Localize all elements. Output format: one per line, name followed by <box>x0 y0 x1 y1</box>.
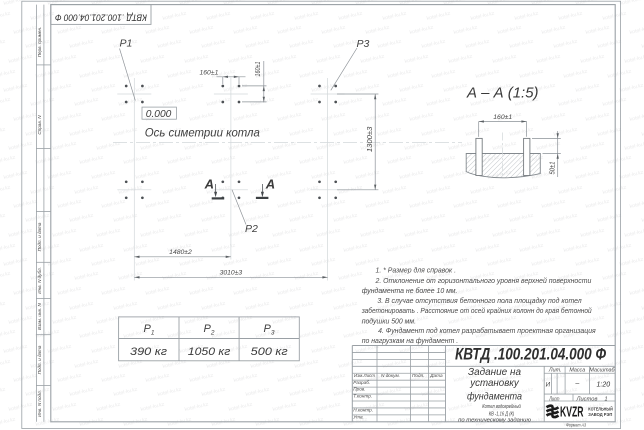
svg-text:kotel-kv.kz: kotel-kv.kz <box>223 170 248 181</box>
svg-text:kotel-kv.kz: kotel-kv.kz <box>431 69 456 80</box>
svg-text:kotel-kv.kz: kotel-kv.kz <box>228 315 253 326</box>
svg-text:Взам. инв. N: Взам. инв. N <box>37 303 42 330</box>
svg-text:kotel-kv.kz: kotel-kv.kz <box>13 286 38 297</box>
svg-text:kotel-kv.kz: kotel-kv.kz <box>338 97 363 108</box>
svg-text:kotel-kv.kz: kotel-kv.kz <box>118 271 143 282</box>
svg-text:kotel-kv.kz: kotel-kv.kz <box>123 155 148 166</box>
svg-text:kotel-kv.kz: kotel-kv.kz <box>162 185 187 196</box>
svg-text:kotel-kv.kz: kotel-kv.kz <box>277 286 302 297</box>
svg-text:Подп.: Подп. <box>412 373 424 378</box>
svg-text:kotel-kv.kz: kotel-kv.kz <box>404 402 429 413</box>
svg-text:kotel-kv.kz: kotel-kv.kz <box>96 402 121 413</box>
svg-text:kotel-kv.kz: kotel-kv.kz <box>250 271 275 282</box>
svg-text:kotel-kv.kz: kotel-kv.kz <box>431 243 456 254</box>
svg-text:установку: установку <box>469 378 519 389</box>
svg-text:kotel-kv.kz: kotel-kv.kz <box>57 286 82 297</box>
svg-text:kotel-kv.kz: kotel-kv.kz <box>333 213 358 224</box>
svg-text:kotel-kv.kz: kotel-kv.kz <box>629 112 644 123</box>
svg-text:kotel-kv.kz: kotel-kv.kz <box>580 228 605 239</box>
svg-text:kotel-kv.kz: kotel-kv.kz <box>74 97 99 108</box>
svg-text:kotel-kv.kz: kotel-kv.kz <box>52 402 77 413</box>
svg-text:kotel-kv.kz: kotel-kv.kz <box>79 69 104 80</box>
svg-text:КВТД .100.201.04.000 Ф: КВТД .100.201.04.000 Ф <box>55 12 147 22</box>
svg-text:kotel-kv.kz: kotel-kv.kz <box>157 387 182 398</box>
svg-text:kotel-kv.kz: kotel-kv.kz <box>162 271 187 282</box>
svg-text:kotel-kv.kz: kotel-kv.kz <box>255 243 280 254</box>
svg-text:kotel-kv.kz: kotel-kv.kz <box>338 11 363 22</box>
svg-text:kotel-kv.kz: kotel-kv.kz <box>377 387 402 398</box>
svg-text:kotel-kv.kz: kotel-kv.kz <box>343 243 368 254</box>
svg-text:kotel-kv.kz: kotel-kv.kz <box>113 387 138 398</box>
svg-text:kotel-kv.kz: kotel-kv.kz <box>497 199 522 210</box>
svg-text:kotel-kv.kz: kotel-kv.kz <box>272 402 297 413</box>
svg-text:kotel-kv.kz: kotel-kv.kz <box>607 69 632 80</box>
svg-text:kotel-kv.kz: kotel-kv.kz <box>497 25 522 36</box>
svg-text:kotel-kv.kz: kotel-kv.kz <box>277 112 302 123</box>
svg-text:kotel-kv.kz: kotel-kv.kz <box>475 243 500 254</box>
svg-text:kotel-kv.kz: kotel-kv.kz <box>0 329 16 340</box>
svg-text:kotel-kv.kz: kotel-kv.kz <box>443 170 468 181</box>
svg-text:160±1: 160±1 <box>493 114 512 121</box>
svg-text:kotel-kv.kz: kotel-kv.kz <box>299 329 324 340</box>
svg-text:kotel-kv.kz: kotel-kv.kz <box>184 402 209 413</box>
svg-text:kotel-kv.kz: kotel-kv.kz <box>206 359 231 370</box>
svg-text:kotel-kv.kz: kotel-kv.kz <box>541 25 566 36</box>
svg-text:kotel-kv.kz: kotel-kv.kz <box>294 359 319 370</box>
svg-text:kotel-kv.kz: kotel-kv.kz <box>355 257 380 268</box>
svg-text:kotel-kv.kz: kotel-kv.kz <box>206 97 231 108</box>
svg-text:kotel-kv.kz: kotel-kv.kz <box>0 11 11 22</box>
svg-text:kotel-kv.kz: kotel-kv.kz <box>426 97 451 108</box>
svg-text:kotel-kv.kz: kotel-kv.kz <box>311 344 336 355</box>
svg-text:kotel-kv.kz: kotel-kv.kz <box>201 213 226 224</box>
svg-text:kotel-kv.kz: kotel-kv.kz <box>140 402 165 413</box>
svg-text:kotel-kv.kz: kotel-kv.kz <box>57 112 82 123</box>
svg-text:kotel-kv.kz: kotel-kv.kz <box>91 344 116 355</box>
svg-text:kotel-kv.kz: kotel-kv.kz <box>465 213 490 224</box>
svg-text:kotel-kv.kz: kotel-kv.kz <box>607 155 632 166</box>
svg-text:kotel-kv.kz: kotel-kv.kz <box>52 315 77 326</box>
svg-text:kotel-kv.kz: kotel-kv.kz <box>201 39 226 50</box>
svg-text:Формат А3: Формат А3 <box>566 423 586 429</box>
svg-text:kotel-kv.kz: kotel-kv.kz <box>245 301 270 312</box>
svg-text:kotel-kv.kz: kotel-kv.kz <box>597 39 622 50</box>
svg-text:kotel-kv.kz: kotel-kv.kz <box>492 315 517 326</box>
svg-text:kotel-kv.kz: kotel-kv.kz <box>52 228 77 239</box>
svg-text:kotel-kv.kz: kotel-kv.kz <box>267 83 292 94</box>
svg-text:kotel-kv.kz: kotel-kv.kz <box>69 387 94 398</box>
svg-text:kotel-kv.kz: kotel-kv.kz <box>387 155 412 166</box>
svg-text:kotel-kv.kz: kotel-kv.kz <box>475 69 500 80</box>
svg-text:kotel-kv.kz: kotel-kv.kz <box>228 54 253 65</box>
svg-text:kotel-kv.kz: kotel-kv.kz <box>575 257 600 268</box>
svg-text:kotel-kv.kz: kotel-kv.kz <box>57 25 82 36</box>
svg-text:kotel-kv.kz: kotel-kv.kz <box>69 213 94 224</box>
svg-text:kotel-kv.kz: kotel-kv.kz <box>157 39 182 50</box>
svg-text:kotel-kv.kz: kotel-kv.kz <box>289 213 314 224</box>
svg-text:kotel-kv.kz: kotel-kv.kz <box>377 127 402 138</box>
svg-text:kotel-kv.kz: kotel-kv.kz <box>8 315 33 326</box>
svg-text:kotel-kv.kz: kotel-kv.kz <box>629 25 644 36</box>
svg-text:kotel-kv.kz: kotel-kv.kz <box>223 257 248 268</box>
svg-text:kotel-kv.kz: kotel-kv.kz <box>118 97 143 108</box>
svg-text:kotel-kv.kz: kotel-kv.kz <box>255 155 280 166</box>
svg-text:kotel-kv.kz: kotel-kv.kz <box>294 97 319 108</box>
svg-text:kotel-kv.kz: kotel-kv.kz <box>629 286 644 297</box>
svg-text:kotel-kv.kz: kotel-kv.kz <box>179 170 204 181</box>
svg-text:kotel-kv.kz: kotel-kv.kz <box>96 228 121 239</box>
svg-text:kotel-kv.kz: kotel-kv.kz <box>399 257 424 268</box>
svg-text:Р2: Р2 <box>245 223 258 235</box>
svg-text:kotel-kv.kz: kotel-kv.kz <box>536 54 561 65</box>
svg-text:kotel-kv.kz: kotel-kv.kz <box>316 54 341 65</box>
svg-text:kotel-kv.kz: kotel-kv.kz <box>316 315 341 326</box>
svg-text:kotel-kv.kz: kotel-kv.kz <box>465 39 490 50</box>
svg-text:kotel-kv.kz: kotel-kv.kz <box>201 387 226 398</box>
svg-text:kotel-kv.kz: kotel-kv.kz <box>509 127 534 138</box>
svg-text:kotel-kv.kz: kotel-kv.kz <box>91 170 116 181</box>
svg-text:kotel-kv.kz: kotel-kv.kz <box>57 199 82 210</box>
svg-text:kotel-kv.kz: kotel-kv.kz <box>101 286 126 297</box>
svg-text:kotel-kv.kz: kotel-kv.kz <box>101 199 126 210</box>
svg-text:kotel-kv.kz: kotel-kv.kz <box>167 69 192 80</box>
svg-text:kotel-kv.kz: kotel-kv.kz <box>57 373 82 384</box>
svg-text:kotel-kv.kz: kotel-kv.kz <box>624 141 644 152</box>
svg-text:kotel-kv.kz: kotel-kv.kz <box>140 54 165 65</box>
svg-text:kotel-kv.kz: kotel-kv.kz <box>360 54 385 65</box>
svg-text:kotel-kv.kz: kotel-kv.kz <box>470 185 495 196</box>
svg-text:kotel-kv.kz: kotel-kv.kz <box>189 373 214 384</box>
svg-text:kotel-kv.kz: kotel-kv.kz <box>553 39 578 50</box>
svg-text:kotel-kv.kz: kotel-kv.kz <box>421 213 446 224</box>
svg-text:kotel-kv.kz: kotel-kv.kz <box>101 25 126 36</box>
svg-text:kotel-kv.kz: kotel-kv.kz <box>233 112 258 123</box>
svg-text:kotel-kv.kz: kotel-kv.kz <box>211 243 236 254</box>
svg-text:kotel-kv.kz: kotel-kv.kz <box>211 155 236 166</box>
svg-text:kotel-kv.kz: kotel-kv.kz <box>96 315 121 326</box>
svg-text:kotel-kv.kz: kotel-kv.kz <box>377 39 402 50</box>
svg-text:kotel-kv.kz: kotel-kv.kz <box>8 141 33 152</box>
svg-text:kotel-kv.kz: kotel-kv.kz <box>624 315 644 326</box>
svg-text:kotel-kv.kz: kotel-kv.kz <box>79 243 104 254</box>
svg-text:kotel-kv.kz: kotel-kv.kz <box>162 97 187 108</box>
svg-text:2. Отклонение от горизонтал: 2. Отклонение от горизонтального уровня … <box>375 277 592 285</box>
svg-text:kotel-kv.kz: kotel-kv.kz <box>228 402 253 413</box>
svg-text:Р2: Р2 <box>204 323 215 337</box>
svg-text:kotel-kv.kz: kotel-kv.kz <box>448 315 473 326</box>
svg-text:kotel-kv.kz: kotel-kv.kz <box>189 112 214 123</box>
svg-text:kotel-kv.kz: kotel-kv.kz <box>79 155 104 166</box>
svg-text:kotel-kv.kz: kotel-kv.kz <box>333 39 358 50</box>
svg-text:kotel-kv.kz: kotel-kv.kz <box>233 199 258 210</box>
svg-text:kotel-kv.kz: kotel-kv.kz <box>0 39 6 50</box>
svg-text:kotel-kv.kz: kotel-kv.kz <box>123 69 148 80</box>
svg-text:kotel-kv.kz: kotel-kv.kz <box>245 387 270 398</box>
svg-text:kotel-kv.kz: kotel-kv.kz <box>382 359 407 370</box>
svg-text:kotel-kv.kz: kotel-kv.kz <box>321 373 346 384</box>
svg-text:kotel-kv.kz: kotel-kv.kz <box>597 301 622 312</box>
svg-text:kotel-kv.kz: kotel-kv.kz <box>321 25 346 36</box>
svg-text:kotel-kv.kz: kotel-kv.kz <box>409 112 434 123</box>
svg-text:kotel-kv.kz: kotel-kv.kz <box>343 155 368 166</box>
svg-text:390 кг: 390 кг <box>130 346 167 358</box>
svg-text:kotel-kv.kz: kotel-kv.kz <box>497 286 522 297</box>
svg-text:kotel-kv.kz: kotel-kv.kz <box>69 301 94 312</box>
svg-text:Масштаб: Масштаб <box>589 367 615 373</box>
svg-text:kotel-kv.kz: kotel-kv.kz <box>585 25 610 36</box>
svg-text:kotel-kv.kz: kotel-kv.kz <box>619 257 644 268</box>
svg-text:kotel-kv.kz: kotel-kv.kz <box>619 0 644 7</box>
svg-text:подушки 500 мм.: подушки 500 мм. <box>362 317 416 325</box>
svg-text:kotel-kv.kz: kotel-kv.kz <box>35 155 60 166</box>
svg-text:kotel-kv.kz: kotel-kv.kz <box>3 344 28 355</box>
svg-text:kotel-kv.kz: kotel-kv.kz <box>289 127 314 138</box>
svg-text:kotel-kv.kz: kotel-kv.kz <box>179 257 204 268</box>
svg-text:160±1: 160±1 <box>200 70 219 77</box>
svg-text:Подп. и дата: Подп. и дата <box>37 222 42 251</box>
svg-text:Справ. N: Справ. N <box>37 115 42 135</box>
svg-text:kotel-kv.kz: kotel-kv.kz <box>333 301 358 312</box>
svg-text:kotel-kv.kz: kotel-kv.kz <box>580 141 605 152</box>
svg-text:kotel-kv.kz: kotel-kv.kz <box>343 69 368 80</box>
svg-text:kotel-kv.kz: kotel-kv.kz <box>453 25 478 36</box>
svg-text:по нагрузкам на фундамент .: по нагрузкам на фундамент . <box>362 337 459 345</box>
svg-text:по техническому заданию: по техническому заданию <box>458 418 531 424</box>
svg-text:А: А <box>265 177 275 192</box>
svg-text:kotel-kv.kz: kotel-kv.kz <box>421 387 446 398</box>
svg-text:kotel-kv.kz: kotel-kv.kz <box>30 271 55 282</box>
svg-text:kotel-kv.kz: kotel-kv.kz <box>443 83 468 94</box>
svg-text:kotel-kv.kz: kotel-kv.kz <box>289 39 314 50</box>
svg-text:kotel-kv.kz: kotel-kv.kz <box>52 141 77 152</box>
svg-text:kotel-kv.kz: kotel-kv.kz <box>8 54 33 65</box>
svg-text:kotel-kv.kz: kotel-kv.kz <box>233 373 258 384</box>
svg-text:Р3: Р3 <box>357 38 370 50</box>
svg-text:kotel-kv.kz: kotel-kv.kz <box>267 257 292 268</box>
svg-text:Разраб.: Разраб. <box>353 380 370 385</box>
svg-text:kotel-kv.kz: kotel-kv.kz <box>465 127 490 138</box>
svg-text:kotel-kv.kz: kotel-kv.kz <box>3 83 28 94</box>
svg-text:kotel-kv.kz: kotel-kv.kz <box>629 199 644 210</box>
svg-text:kotel-kv.kz: kotel-kv.kz <box>3 257 28 268</box>
svg-text:Инв. N подл.: Инв. N подл. <box>37 390 42 417</box>
svg-text:А – А (1:5): А – А (1:5) <box>466 86 539 102</box>
svg-text:kotel-kv.kz: kotel-kv.kz <box>118 185 143 196</box>
svg-text:kotel-kv.kz: kotel-kv.kz <box>223 83 248 94</box>
svg-text:И: И <box>546 381 551 388</box>
svg-text:kotel-kv.kz: kotel-kv.kz <box>250 359 275 370</box>
svg-text:kotel-kv.kz: kotel-kv.kz <box>316 228 341 239</box>
svg-text:kotel-kv.kz: kotel-kv.kz <box>585 286 610 297</box>
svg-text:kotel-kv.kz: kotel-kv.kz <box>189 199 214 210</box>
svg-text:kotel-kv.kz: kotel-kv.kz <box>536 228 561 239</box>
svg-text:kotel-kv.kz: kotel-kv.kz <box>382 185 407 196</box>
svg-text:kotel-kv.kz: kotel-kv.kz <box>167 155 192 166</box>
svg-text:kotel-kv.kz: kotel-kv.kz <box>580 315 605 326</box>
svg-text:kotel-kv.kz: kotel-kv.kz <box>575 83 600 94</box>
svg-text:kotel-kv.kz: kotel-kv.kz <box>233 25 258 36</box>
svg-text:kotel-kv.kz: kotel-kv.kz <box>580 54 605 65</box>
svg-text:kotel-kv.kz: kotel-kv.kz <box>321 199 346 210</box>
svg-text:kotel-kv.kz: kotel-kv.kz <box>355 170 380 181</box>
svg-text:kotel-kv.kz: kotel-kv.kz <box>448 402 473 413</box>
svg-text:Котел водогрейный: Котел водогрейный <box>482 403 521 410</box>
svg-text:1300±3: 1300±3 <box>365 126 374 152</box>
svg-text:Подп. и дата: Подп. и дата <box>37 345 42 374</box>
svg-text:kotel-kv.kz: kotel-kv.kz <box>277 373 302 384</box>
svg-text:kotel-kv.kz: kotel-kv.kz <box>25 213 50 224</box>
svg-text:kotel-kv.kz: kotel-kv.kz <box>135 83 160 94</box>
svg-text:kotel-kv.kz: kotel-kv.kz <box>338 185 363 196</box>
svg-text:kotel-kv.kz: kotel-kv.kz <box>333 127 358 138</box>
svg-text:kotel-kv.kz: kotel-kv.kz <box>558 97 583 108</box>
svg-text:kotel-kv.kz: kotel-kv.kz <box>96 54 121 65</box>
svg-text:kotel-kv.kz: kotel-kv.kz <box>387 243 412 254</box>
svg-text:kotel-kv.kz: kotel-kv.kz <box>145 25 170 36</box>
svg-text:kotel-kv.kz: kotel-kv.kz <box>536 315 561 326</box>
svg-text:Утв.: Утв. <box>353 415 364 420</box>
svg-text:kotel-kv.kz: kotel-kv.kz <box>272 54 297 65</box>
svg-text:kotel-kv.kz: kotel-kv.kz <box>79 329 104 340</box>
svg-text:kotel-kv.kz: kotel-kv.kz <box>294 11 319 22</box>
svg-text:kotel-kv.kz: kotel-kv.kz <box>118 359 143 370</box>
svg-text:kotel-kv.kz: kotel-kv.kz <box>382 11 407 22</box>
svg-text:kotel-kv.kz: kotel-kv.kz <box>74 185 99 196</box>
svg-text:3010±3: 3010±3 <box>220 270 243 277</box>
svg-text:kotel-kv.kz: kotel-kv.kz <box>135 170 160 181</box>
svg-text:–: – <box>574 380 579 387</box>
svg-text:kotel-kv.kz: kotel-kv.kz <box>365 25 390 36</box>
svg-text:3. В случае отсутствия бет: 3. В случае отсутствия бетонного пола пл… <box>377 297 581 305</box>
svg-text:kotel-kv.kz: kotel-kv.kz <box>382 97 407 108</box>
svg-text:kotel-kv.kz: kotel-kv.kz <box>91 257 116 268</box>
svg-text:Перв. примен.: Перв. примен. <box>37 27 42 58</box>
svg-text:KVZR: KVZR <box>560 404 584 420</box>
svg-text:КВТД .100.201.04.000 Ф: КВТД .100.201.04.000 Ф <box>455 346 606 364</box>
svg-text:kotel-kv.kz: kotel-kv.kz <box>470 11 495 22</box>
svg-text:Лист: Лист <box>548 397 559 403</box>
svg-text:kotel-kv.kz: kotel-kv.kz <box>443 257 468 268</box>
svg-text:4. Фундамент под котел раз: 4. Фундамент под котел разрабатывает про… <box>378 327 596 335</box>
svg-text:1480±2: 1480±2 <box>169 249 192 256</box>
svg-text:kotel-kv.kz: kotel-kv.kz <box>597 127 622 138</box>
svg-text:kotel-kv.kz: kotel-kv.kz <box>316 402 341 413</box>
svg-text:kotel-kv.kz: kotel-kv.kz <box>321 112 346 123</box>
svg-text:Н.контр.: Н.контр. <box>353 408 373 413</box>
svg-text:kotel-kv.kz: kotel-kv.kz <box>629 373 644 384</box>
svg-text:kotel-kv.kz: kotel-kv.kz <box>299 69 324 80</box>
svg-text:kotel-kv.kz: kotel-kv.kz <box>321 286 346 297</box>
svg-text:kotel-kv.kz: kotel-kv.kz <box>624 228 644 239</box>
svg-text:kotel-kv.kz: kotel-kv.kz <box>113 301 138 312</box>
svg-text:kotel-kv.kz: kotel-kv.kz <box>91 83 116 94</box>
svg-text:kotel-kv.kz: kotel-kv.kz <box>453 199 478 210</box>
svg-text:kotel-kv.kz: kotel-kv.kz <box>448 228 473 239</box>
svg-text:kotel-kv.kz: kotel-kv.kz <box>426 359 451 370</box>
svg-text:kotel-kv.kz: kotel-kv.kz <box>311 257 336 268</box>
svg-text:kotel-kv.kz: kotel-kv.kz <box>8 402 33 413</box>
svg-text:Дата: Дата <box>429 373 443 378</box>
svg-text:забетонировать . Расстояние: забетонировать . Расстояние от осей край… <box>361 307 592 315</box>
svg-text:kotel-kv.kz: kotel-kv.kz <box>69 39 94 50</box>
svg-text:Масса: Масса <box>569 367 585 373</box>
svg-text:Р1: Р1 <box>144 323 155 337</box>
svg-text:kotel-kv.kz: kotel-kv.kz <box>409 199 434 210</box>
svg-text:kotel-kv.kz: kotel-kv.kz <box>541 199 566 210</box>
svg-text:kotel-kv.kz: kotel-kv.kz <box>558 11 583 22</box>
svg-text:kotel-kv.kz: kotel-kv.kz <box>145 286 170 297</box>
svg-text:kotel-kv.kz: kotel-kv.kz <box>272 315 297 326</box>
svg-text:kotel-kv.kz: kotel-kv.kz <box>338 359 363 370</box>
svg-text:kotel-kv.kz: kotel-kv.kz <box>519 69 544 80</box>
svg-text:kotel-kv.kz: kotel-kv.kz <box>0 271 11 282</box>
svg-text:kotel-kv.kz: kotel-kv.kz <box>52 54 77 65</box>
svg-text:kotel-kv.kz: kotel-kv.kz <box>277 25 302 36</box>
svg-text:kotel-kv.kz: kotel-kv.kz <box>453 112 478 123</box>
svg-text:160±1: 160±1 <box>253 62 262 77</box>
svg-text:kotel-kv.kz: kotel-kv.kz <box>355 83 380 94</box>
svg-text:kotel-kv.kz: kotel-kv.kz <box>299 155 324 166</box>
svg-text:kotel-kv.kz: kotel-kv.kz <box>3 170 28 181</box>
svg-text:kotel-kv.kz: kotel-kv.kz <box>448 54 473 65</box>
svg-text:kotel-kv.kz: kotel-kv.kz <box>426 185 451 196</box>
svg-text:kotel-kv.kz: kotel-kv.kz <box>624 402 644 413</box>
svg-text:kotel-kv.kz: kotel-kv.kz <box>514 11 539 22</box>
svg-text:kotel-kv.kz: kotel-kv.kz <box>619 83 644 94</box>
svg-text:kotel-kv.kz: kotel-kv.kz <box>13 25 38 36</box>
svg-text:kotel-kv.kz: kotel-kv.kz <box>0 69 16 80</box>
svg-text:kotel-kv.kz: kotel-kv.kz <box>426 11 451 22</box>
svg-text:kotel-kv.kz: kotel-kv.kz <box>250 97 275 108</box>
svg-text:kotel-kv.kz: kotel-kv.kz <box>145 373 170 384</box>
svg-text:kotel-kv.kz: kotel-kv.kz <box>575 170 600 181</box>
svg-text:kotel-kv.kz: kotel-kv.kz <box>30 11 55 22</box>
svg-text:kotel-kv.kz: kotel-kv.kz <box>74 271 99 282</box>
svg-text:kotel-kv.kz: kotel-kv.kz <box>585 199 610 210</box>
svg-text:kotel-kv.kz: kotel-kv.kz <box>294 271 319 282</box>
svg-text:kotel-kv.kz: kotel-kv.kz <box>140 228 165 239</box>
svg-text:фундамента: фундамента <box>467 390 522 402</box>
svg-text:Инв. N дубл.: Инв. N дубл. <box>37 267 42 294</box>
svg-text:kotel-kv.kz: kotel-kv.kz <box>553 213 578 224</box>
svg-text:kotel-kv.kz: kotel-kv.kz <box>563 69 588 80</box>
svg-text:kotel-kv.kz: kotel-kv.kz <box>101 373 126 384</box>
svg-text:ЗАВОД РЭП: ЗАВОД РЭП <box>588 412 612 417</box>
svg-text:kotel-kv.kz: kotel-kv.kz <box>299 243 324 254</box>
svg-text:kotel-kv.kz: kotel-kv.kz <box>509 39 534 50</box>
svg-text:kotel-kv.kz: kotel-kv.kz <box>189 25 214 36</box>
svg-text:kotel-kv.kz: kotel-kv.kz <box>206 11 231 22</box>
svg-text:kotel-kv.kz: kotel-kv.kz <box>607 329 632 340</box>
svg-text:kotel-kv.kz: kotel-kv.kz <box>607 243 632 254</box>
svg-text:kotel-kv.kz: kotel-kv.kz <box>35 69 60 80</box>
svg-text:50±1: 50±1 <box>548 162 557 175</box>
svg-text:КОТЕЛЬНЫЙ: КОТЕЛЬНЫЙ <box>588 407 613 412</box>
svg-text:kotel-kv.kz: kotel-kv.kz <box>13 199 38 210</box>
svg-text:kotel-kv.kz: kotel-kv.kz <box>0 97 11 108</box>
svg-text:kotel-kv.kz: kotel-kv.kz <box>294 185 319 196</box>
svg-text:kotel-kv.kz: kotel-kv.kz <box>365 112 390 123</box>
svg-text:kotel-kv.kz: kotel-kv.kz <box>162 11 187 22</box>
svg-text:kotel-kv.kz: kotel-kv.kz <box>541 286 566 297</box>
svg-text:kotel-kv.kz: kotel-kv.kz <box>162 359 187 370</box>
svg-text:Лит.: Лит. <box>548 367 562 373</box>
svg-text:kotel-kv.kz: kotel-kv.kz <box>421 39 446 50</box>
svg-text:kotel-kv.kz: kotel-kv.kz <box>135 257 160 268</box>
svg-text:КВ -1,16 Д (К): КВ -1,16 Д (К) <box>489 411 515 417</box>
svg-text:kotel-kv.kz: kotel-kv.kz <box>289 301 314 312</box>
svg-text:kotel-kv.kz: kotel-kv.kz <box>0 127 6 138</box>
